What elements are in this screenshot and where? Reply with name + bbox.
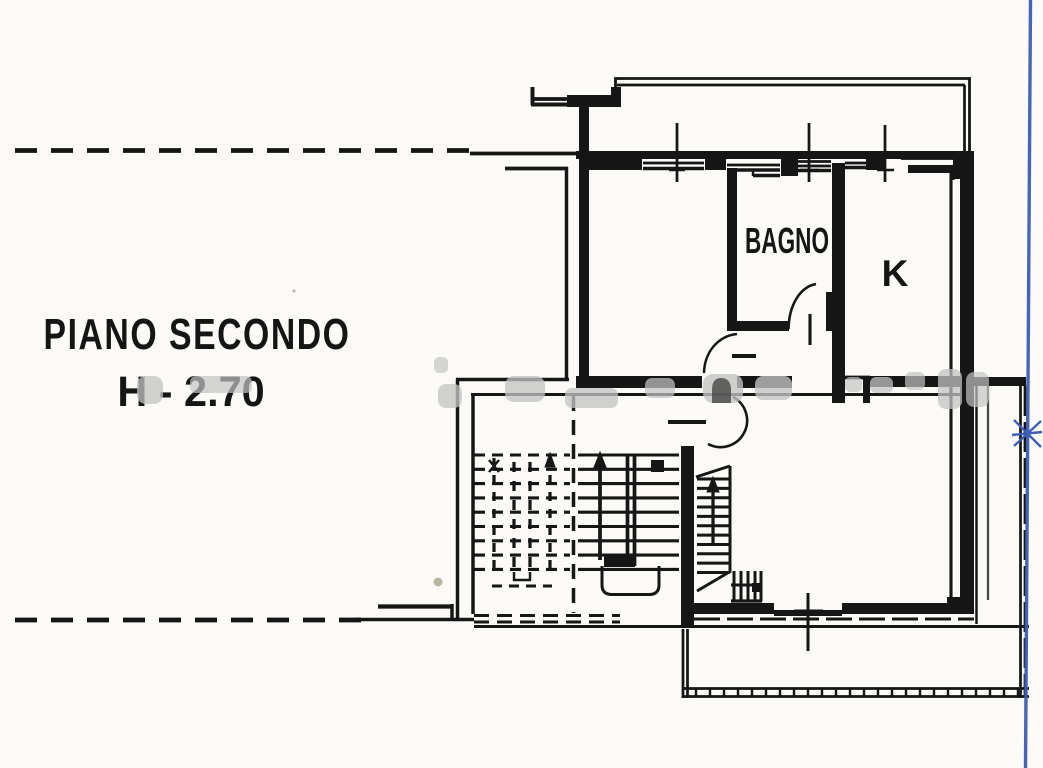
svg-text:K: K: [882, 253, 909, 294]
svg-text:BAGNO: BAGNO: [745, 220, 829, 261]
svg-text:PIANO SECONDO: PIANO SECONDO: [44, 309, 351, 358]
